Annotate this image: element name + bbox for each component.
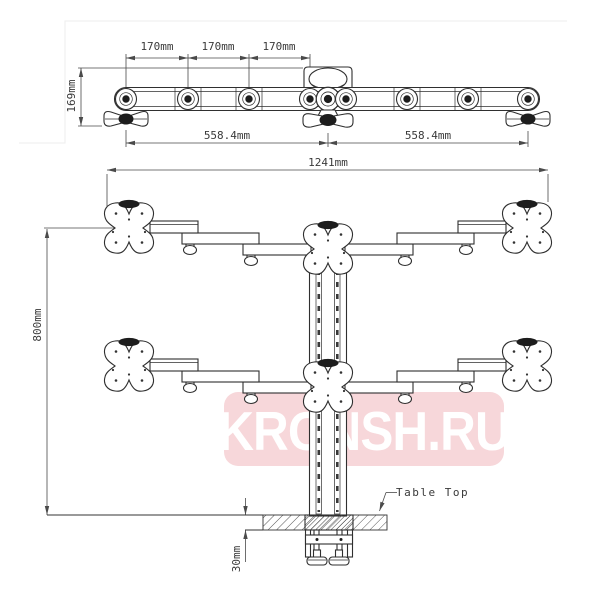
- vesa-plate-right-row2: [502, 338, 551, 391]
- dim-half-span-right: 558.4mm: [405, 129, 452, 142]
- center-clamp-top: [303, 110, 353, 127]
- vesa-plate-left-row1: [104, 200, 153, 253]
- table-top-label: Table Top: [396, 486, 469, 499]
- top-view: 170mm 170mm 170mm 169mm 558.4mm 558.4mm: [65, 40, 550, 147]
- dim-half-span-left: 558.4mm: [204, 129, 251, 142]
- watermark: KRONSH.RU: [218, 392, 510, 466]
- table-top: [47, 515, 387, 530]
- drawing-canvas: KRONSH.RU: [0, 0, 600, 600]
- vesa-plate-right-row1: [502, 200, 551, 253]
- dim-table-thickness: 30mm: [230, 545, 243, 572]
- dim-arm-spacing-3: 170mm: [262, 40, 295, 53]
- dim-depth: 169mm: [65, 79, 78, 112]
- dim-arm-spacing-2: 170mm: [201, 40, 234, 53]
- dim-arm-spacing-1: 170mm: [140, 40, 173, 53]
- arm-right-row1: [345, 221, 506, 266]
- technical-drawing-page: KRONSH.RU: [0, 0, 600, 600]
- right-end-bracket-top: [506, 112, 550, 127]
- desk-clamp: [306, 530, 353, 565]
- dim-column-height: 800mm: [31, 308, 44, 341]
- vesa-plate-left-row2: [104, 338, 153, 391]
- table-top-annotation: Table Top: [380, 486, 470, 511]
- dim-total-width: 1241mm: [308, 156, 348, 169]
- front-view: Table Top 1241mm 800mm 30mm: [31, 156, 552, 572]
- arm-left-row1: [150, 221, 311, 266]
- watermark-text: KRONSH.RU: [218, 402, 510, 463]
- left-end-bracket-top: [104, 112, 148, 127]
